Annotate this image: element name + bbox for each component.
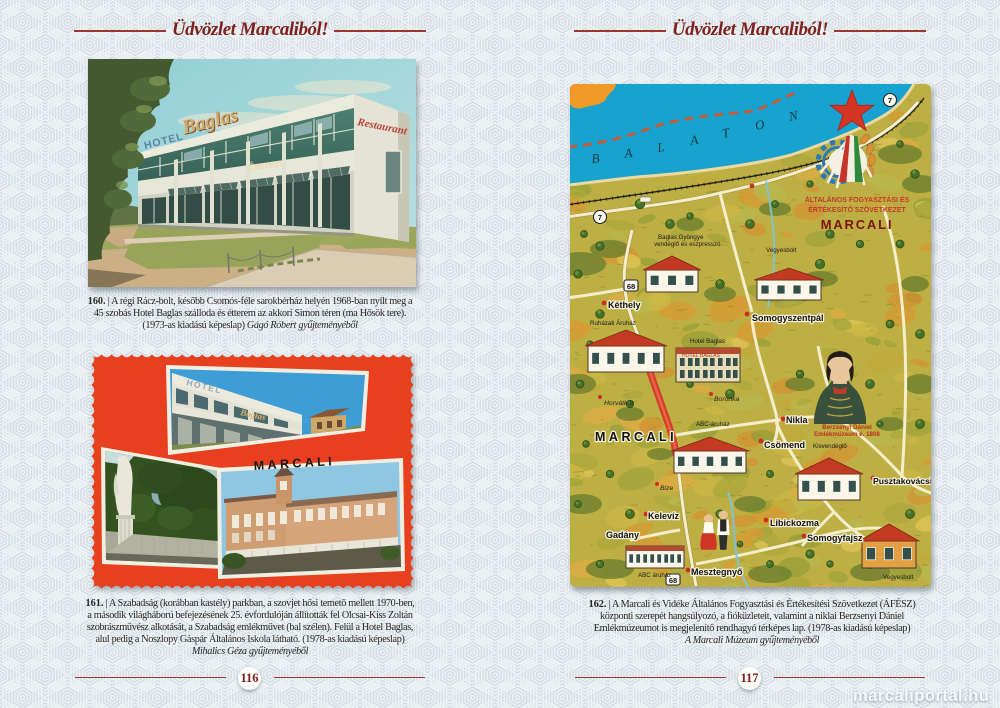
svg-text:vendéglő és eszpresszó: vendéglő és eszpresszó [654,241,721,248]
svg-text:Berzsenyi Dániel: Berzsenyi Dániel [822,424,872,431]
svg-text:Kelevíz: Kelevíz [648,511,680,521]
svg-text:Somogyfajsz: Somogyfajsz [807,533,863,543]
svg-text:B: B [591,150,601,166]
svg-text:68: 68 [627,282,635,291]
svg-text:Nikla: Nikla [786,415,809,425]
svg-text:Libickozma: Libickozma [770,518,820,528]
svg-text:ABC áruház: ABC áruház [638,572,671,579]
svg-text:7: 7 [888,96,892,105]
svg-text:Horvátkút: Horvátkút [604,400,634,407]
svg-text:Pusztakovácsi: Pusztakovácsi [873,476,931,486]
svg-text:Baglas Gyöngye: Baglas Gyöngye [658,234,704,241]
svg-text:ABC-áruház: ABC-áruház [696,421,730,428]
svg-text:Hotel Baglas: Hotel Baglas [690,338,725,345]
svg-text:Ruházati Áruház: Ruházati Áruház [590,320,636,327]
svg-text:ÉRTÉKESÍTŐ SZÖVETKEZET: ÉRTÉKESÍTŐ SZÖVETKEZET [808,205,906,214]
svg-text:HOTEL BAGLAS: HOTEL BAGLAS [682,353,721,359]
svg-text:ÁLTALÁNOS FOGYASZTÁSI ÉS: ÁLTALÁNOS FOGYASZTÁSI ÉS [805,195,910,204]
svg-text:Somogyszentpál: Somogyszentpál [752,313,824,323]
svg-text:Boronka: Boronka [714,396,740,403]
svg-text:MARCALI: MARCALI [595,430,677,444]
svg-text:MARCALI: MARCALI [821,217,894,232]
svg-text:Csömend: Csömend [764,440,805,450]
svg-text:Mesztegnyő: Mesztegnyő [691,567,743,577]
svg-text:Kisvendéglő: Kisvendéglő [813,443,847,450]
svg-text:Bize: Bize [660,485,673,492]
svg-text:Gadány: Gadány [606,530,639,540]
svg-text:Emlékmúzeum é. 1808: Emlékmúzeum é. 1808 [814,431,880,438]
svg-text:Vegyesbolt: Vegyesbolt [883,574,914,581]
svg-text:Vegyesbolt: Vegyesbolt [766,247,797,254]
svg-text:7: 7 [598,213,602,222]
svg-text:Kéthely: Kéthely [608,300,641,310]
